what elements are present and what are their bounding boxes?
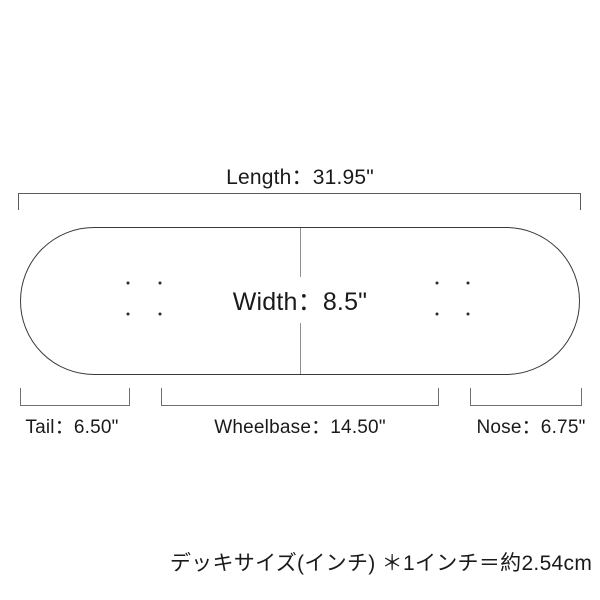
length-dimension-label: Length：31.95" <box>226 161 374 191</box>
mounting-hole <box>436 313 439 316</box>
deck-size-note: デッキサイズ(インチ) ＊1インチ＝約2.54cm <box>170 547 592 577</box>
nose-dimension-label: Nose：6.75" <box>476 412 585 439</box>
wheelbase-dimension-label: Wheelbase：14.50" <box>214 412 386 439</box>
length-dimension-line <box>18 193 581 210</box>
deck-size-diagram: Length：31.95" Width：8.5" Tail：6.50" Whee… <box>0 0 600 600</box>
mounting-hole <box>436 282 439 285</box>
wheelbase-dimension-bracket <box>161 388 439 406</box>
mounting-hole <box>467 282 470 285</box>
mounting-hole <box>127 313 130 316</box>
nose-dimension-bracket <box>470 388 582 406</box>
mounting-hole <box>159 313 162 316</box>
mounting-hole <box>467 313 470 316</box>
tail-dimension-label: Tail：6.50" <box>25 412 118 439</box>
mounting-hole <box>159 282 162 285</box>
width-dimension-label: Width：8.5" <box>230 277 371 323</box>
mounting-hole <box>127 282 130 285</box>
tail-dimension-bracket <box>20 388 130 406</box>
